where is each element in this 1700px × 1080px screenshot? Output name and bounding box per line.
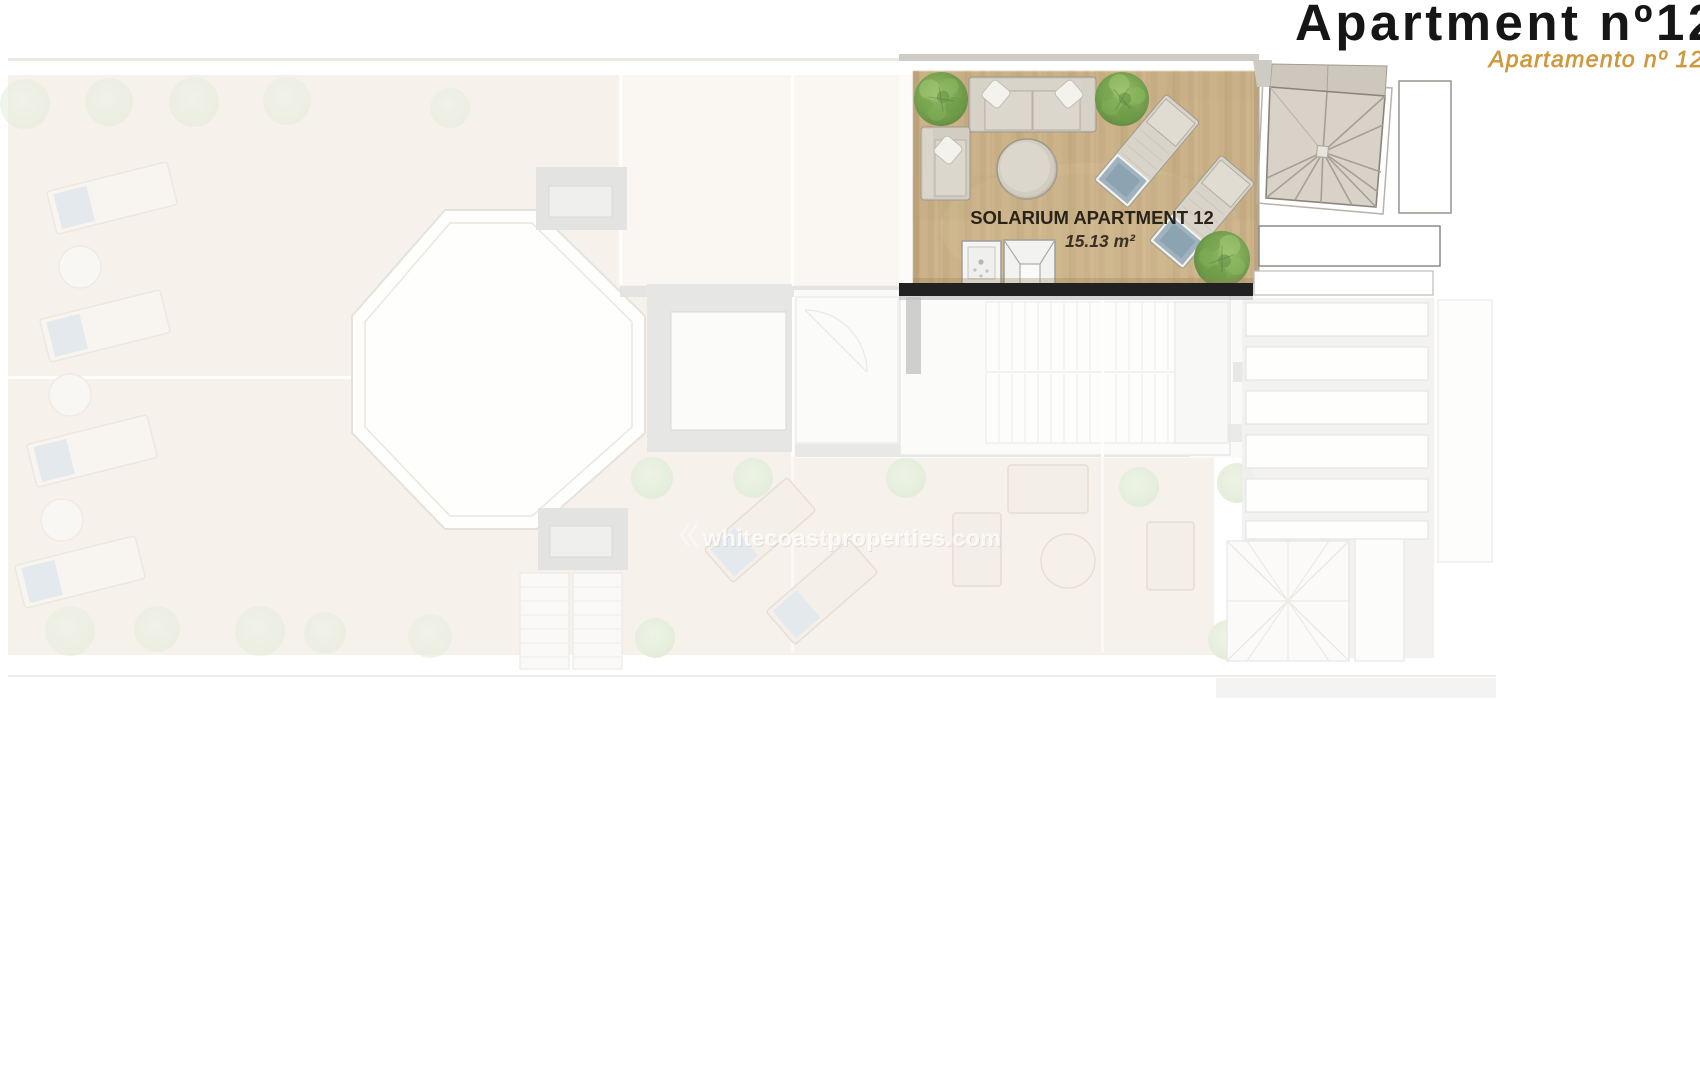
- svg-text:15.13 m²: 15.13 m²: [1065, 231, 1136, 251]
- svg-text:whitecoastproperties.com: whitecoastproperties.com: [702, 525, 1001, 551]
- svg-text:SOLARIUM APARTMENT 12: SOLARIUM APARTMENT 12: [970, 207, 1214, 228]
- svg-text:Apartment nº12: Apartment nº12: [1295, 0, 1700, 51]
- svg-text:Apartamento nº 12: Apartamento nº 12: [1487, 46, 1700, 72]
